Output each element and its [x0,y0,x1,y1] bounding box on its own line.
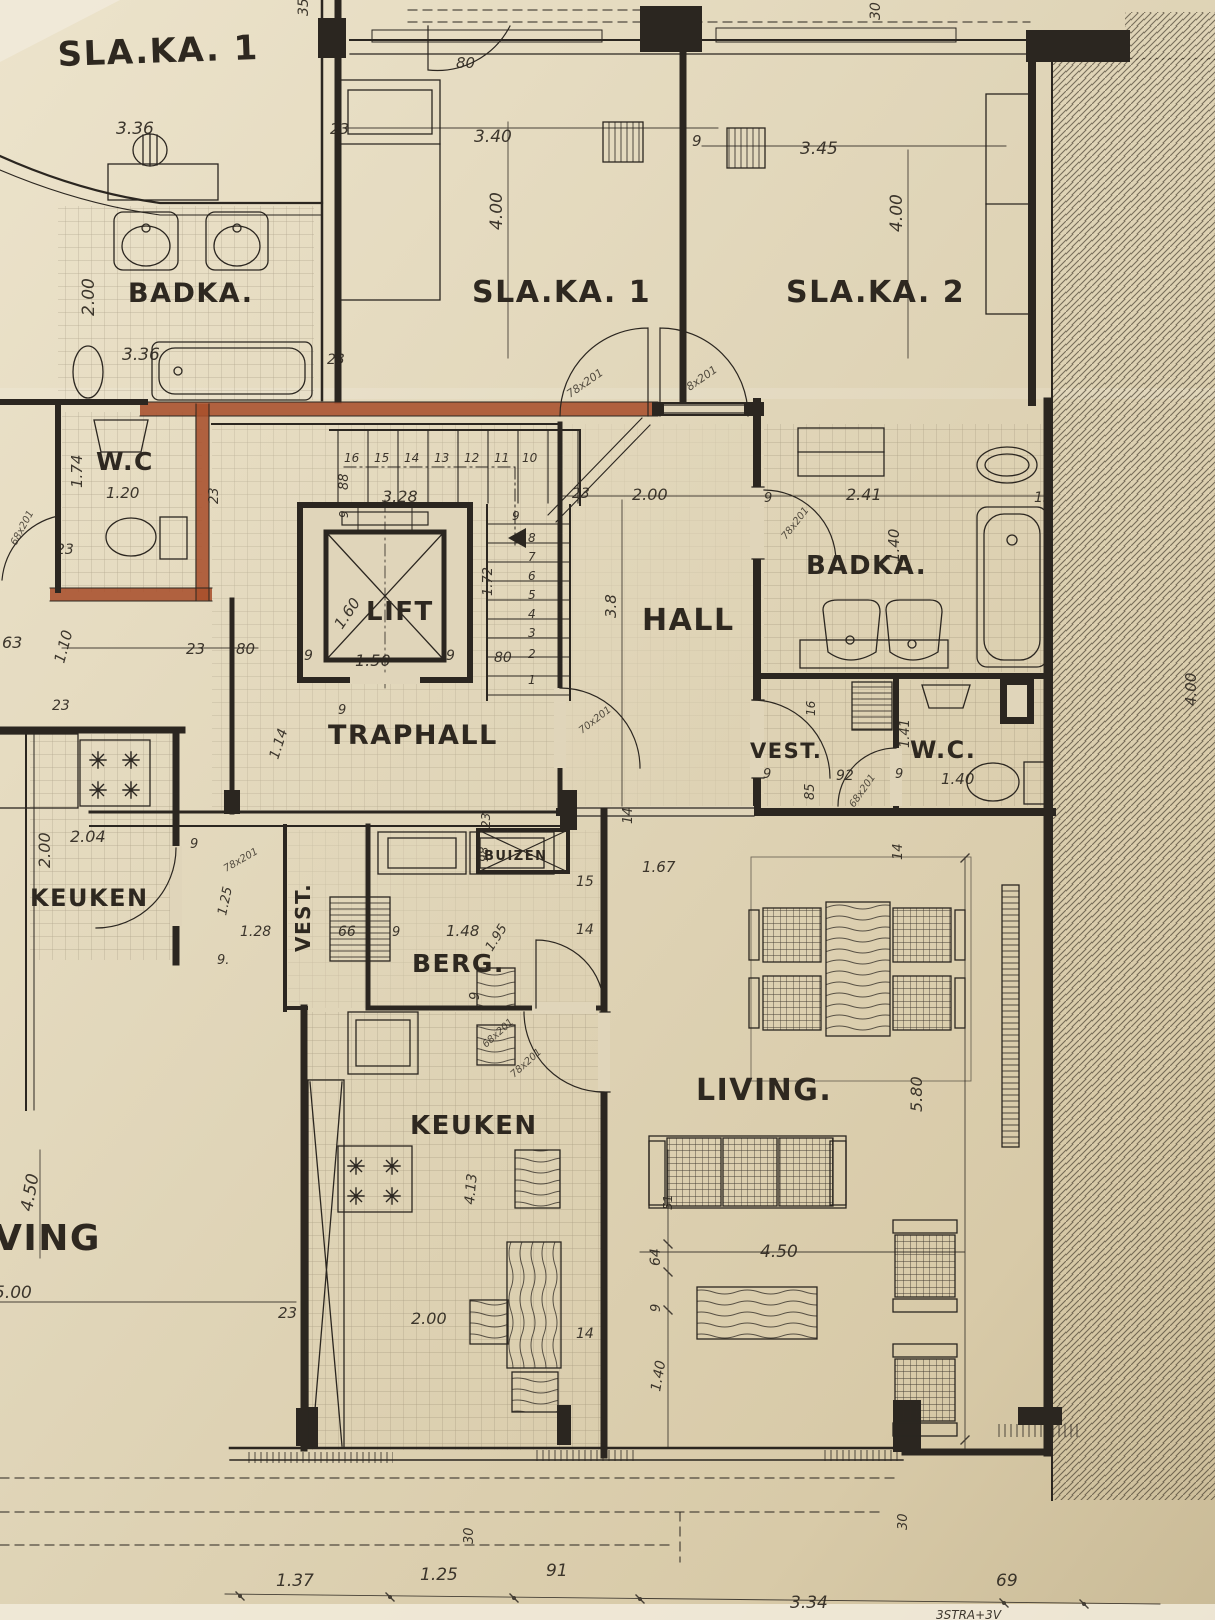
room-label-13: BERG. [412,949,505,978]
dimension-label-35: 63 [2,633,22,652]
dining-chair [763,976,821,1030]
dimension-label-58: 1.72 [481,567,496,596]
dimension-label-115: 51 [661,1195,675,1210]
dimension-label-45: 13 [434,451,449,465]
room-label-12: VEST. [291,883,315,952]
dimension-label-18: 3.36 [116,119,154,139]
dimension-label-54: 4 [528,607,536,621]
room-label-11: KEUKEN [30,884,149,912]
dimension-label-38: 80 [236,640,255,658]
dimension-label-75: 2.41 [846,485,882,504]
dimension-label-57: 1 [528,673,536,687]
dimension-label-50: 8 [528,531,536,545]
dimension-label-22: 80 [456,54,475,72]
dimension-label-39: 88 [337,473,352,490]
dimension-label-61: 1.50 [355,651,391,670]
dimension-label-89: 2.00 [35,832,54,868]
dimension-label-48: 10 [522,451,538,465]
dimension-label-33: 23 [207,487,222,504]
armchair [895,1235,955,1297]
dimension-label-23: 23 [330,120,349,138]
dimension-label-88: 2.04 [70,827,106,846]
red-marked-wall [140,402,658,416]
dimension-label-113: 9 [649,1304,664,1312]
dimension-label-90: 9 [190,837,198,852]
room-label-10: W.C. [910,736,976,764]
dimension-label-49: 9 [512,509,520,523]
dimension-label-44: 14 [404,451,419,465]
dimension-label-100: 23 [479,813,493,828]
dimension-label-111: 4.50 [760,1242,798,1262]
dimension-label-108: 23 [278,1304,297,1322]
dimension-label-73: 9 [764,491,772,506]
nightstand [727,128,765,168]
room-label-2: SLA.KA. 1 [472,275,651,310]
dimension-label-79: 9 [763,767,771,782]
dimension-label-96: 9 [392,925,400,940]
dimension-label-26: 23 [327,352,345,368]
room-label-3: SLA.KA. 2 [786,275,965,310]
dimension-label-95: 66 [338,924,356,940]
dimension-label-97: 1.48 [446,922,479,940]
dimension-label-119: 1.25 [420,1565,458,1585]
dimension-label-112: 64 [648,1248,664,1266]
room-label-15: KEUKEN [410,1111,538,1141]
dimension-label-32: 1.20 [106,484,139,502]
dimension-label-77: 15 [1034,490,1052,506]
dimension-label-55: 3 [528,626,536,640]
dimension-label-87: 23 [52,698,70,714]
dimension-label-125: 3STRA+3V [936,1608,1002,1620]
dimension-label-53: 5 [528,588,536,602]
dimension-label-42: 16 [344,451,360,465]
dimension-label-30: 30 [868,2,884,20]
dining-chair [893,908,951,962]
dimension-label-105: 14 [576,922,594,938]
room-label-5: LIFT [366,597,434,627]
dimension-label-68: 2.00 [632,485,668,504]
dimension-label-101: 98 [477,846,491,862]
dimension-label-120: 91 [546,1561,568,1581]
coffee-table [697,1287,817,1339]
dimension-label-19: 2.00 [79,278,99,316]
paper-edge [0,1604,1215,1620]
dimension-label-25: 4.00 [487,192,507,230]
dimension-label-124: 30 [896,1513,911,1530]
room-label-4: W.C [96,447,154,476]
dimension-label-109: 14 [576,1326,594,1342]
room-label-17: VING [0,1218,101,1259]
dimension-label-94: 9. [217,953,229,968]
room-label-14: BUIZEN [484,849,548,864]
dimension-label-59: 80 [494,650,512,666]
dimension-label-37: 23 [186,640,205,658]
dimension-label-63: 9 [446,648,455,664]
dimension-label-110: 5.80 [907,1076,926,1112]
dimension-label-122: 69 [996,1571,1018,1591]
room-label-7: HALL [642,603,735,638]
dimension-label-20: 3.36 [122,345,160,365]
dining-chair [893,976,951,1030]
dimension-label-70: 1.67 [642,858,676,876]
dimension-label-104: 15 [576,874,594,890]
dimension-label-85: 9 [895,767,903,782]
dimension-label-84: 1.40 [941,770,974,788]
room-label-6: TRAPHALL [328,720,498,751]
dimension-label-126: 1.40 [0,415,3,442]
dimension-label-34: 23 [56,542,74,558]
dimension-label-21: 35 [296,0,312,16]
dimension-label-99: 9 [468,992,483,1000]
room-label-8: BADKA. [806,551,927,581]
dimension-label-118: 1.37 [276,1571,314,1591]
dimension-label-29: 4.00 [887,194,907,232]
dimension-label-69: 3.8 [602,594,620,618]
dimension-label-41: 3.28 [382,487,418,506]
room-label-9: VEST. [750,739,822,763]
dining-table [826,902,890,1036]
dimension-label-46: 12 [464,451,479,465]
dimension-label-51: 7 [528,550,536,564]
dimension-label-121: 3.34 [790,1593,828,1613]
dining-chair [763,908,821,962]
dimension-label-72: 14 [891,843,906,860]
dimension-label-117: 5.00 [0,1283,32,1303]
dimension-label-71: 14 [621,807,636,824]
dimension-label-106: 4.13 [462,1173,481,1205]
floor-plan-photo: SLA.KA. 1BADKA.SLA.KA. 1SLA.KA. 2W.CLIFT… [0,0,1215,1620]
dimension-label-40: 9 [337,510,351,518]
dimension-label-62: 9 [304,648,313,664]
room-label-16: LIVING. [696,1073,832,1108]
dimension-label-86: 4.00 [1182,673,1200,706]
dimension-label-81: 92 [836,768,854,784]
dimension-label-43: 15 [374,451,389,465]
dimension-label-107: 2.00 [411,1309,447,1328]
dimension-label-83: 1.41 [898,719,913,748]
dimension-label-93: 1.28 [240,924,271,940]
dimension-label-52: 6 [528,569,536,583]
dimension-label-56: 2 [528,647,536,661]
floor-plan-svg: SLA.KA. 1BADKA.SLA.KA. 1SLA.KA. 2W.CLIFT… [0,0,1215,1620]
dimension-label-123: 30 [462,1527,477,1544]
dimension-label-76: 1.40 [885,529,903,562]
dimension-label-24: 3.40 [474,127,512,147]
dimension-label-47: 11 [494,451,509,465]
room-label-0: SLA.KA. 1 [57,28,259,75]
radiator [1002,885,1019,1147]
dimension-label-27: 9 [692,132,702,150]
dimension-label-67: 23 [572,486,590,502]
fridge-cabinet [507,1242,561,1368]
dimension-label-31: 1.74 [68,455,86,488]
dimension-label-28: 3.45 [800,139,838,159]
dimension-label-66: 9 [338,703,346,718]
armchair [895,1359,955,1421]
exterior-hatch [1052,12,1215,1500]
dimension-label-80: 85 [803,783,818,800]
dimension-label-78: 16 [804,700,818,716]
room-label-1: BADKA. [128,278,253,309]
